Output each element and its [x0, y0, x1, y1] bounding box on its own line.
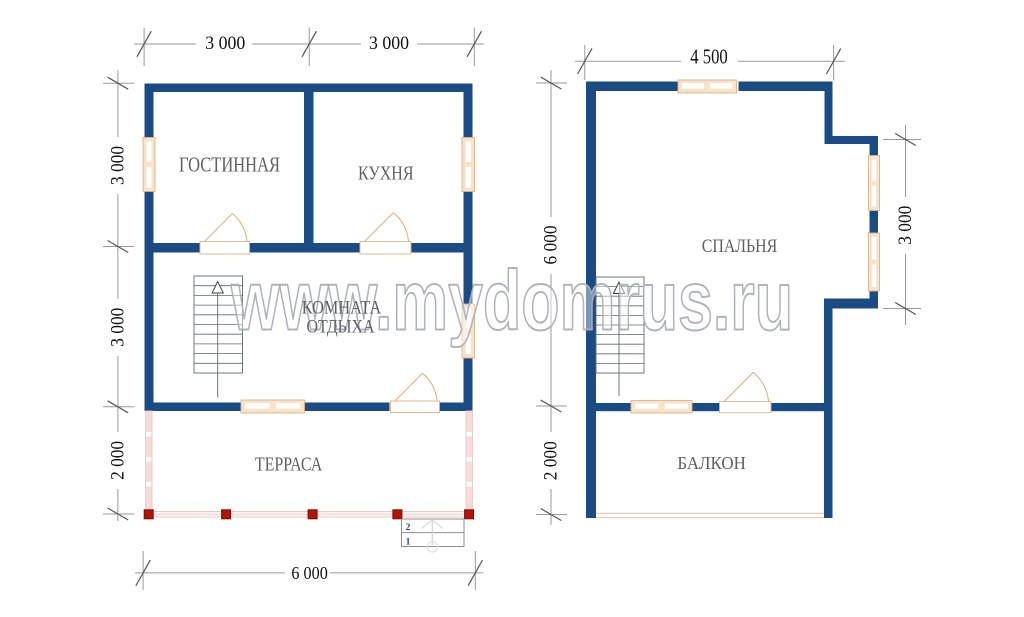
svg-text:3 000: 3 000 [205, 33, 245, 54]
svg-text:2 000: 2 000 [541, 441, 562, 480]
svg-text:2 000: 2 000 [107, 441, 128, 480]
svg-text:КОМНАТА: КОМНАТА [302, 298, 382, 319]
svg-text:1: 1 [406, 537, 411, 547]
svg-text:ГОСТИННАЯ: ГОСТИННАЯ [179, 152, 280, 176]
svg-text:КУХНЯ: КУХНЯ [358, 162, 414, 184]
svg-text:3 000: 3 000 [369, 33, 409, 54]
svg-text:ТЕРРАСА: ТЕРРАСА [255, 454, 323, 476]
svg-text:ОТДЫХА: ОТДЫХА [307, 317, 375, 338]
svg-text:6 000: 6 000 [291, 563, 328, 583]
svg-text:3 000: 3 000 [895, 206, 916, 245]
svg-text:4 500: 4 500 [690, 45, 728, 69]
svg-text:3 000: 3 000 [107, 308, 128, 347]
svg-text:СПАЛЬНЯ: СПАЛЬНЯ [702, 236, 778, 257]
svg-text:2: 2 [406, 523, 411, 533]
svg-text:3 000: 3 000 [107, 146, 128, 185]
svg-text:БАЛКОН: БАЛКОН [677, 453, 746, 473]
